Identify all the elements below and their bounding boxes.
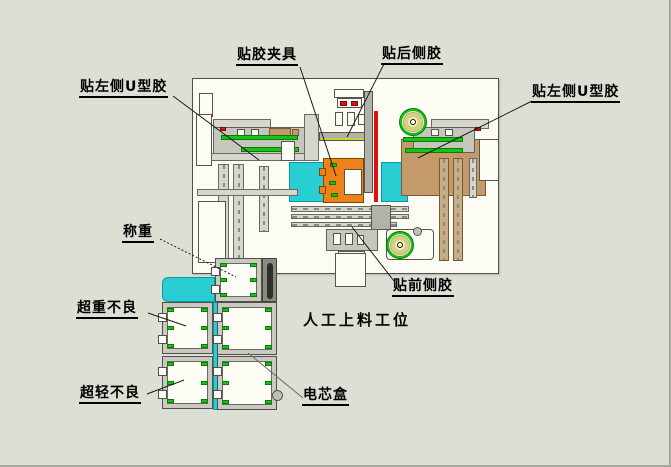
box-clip	[167, 362, 174, 366]
left-vertical-rail	[233, 164, 244, 261]
front-taping-head	[371, 205, 391, 230]
overweight-reject-box	[162, 302, 213, 354]
box-notch	[211, 285, 220, 294]
slot-groove	[267, 263, 273, 299]
label-left-u-taping-left: 贴左侧U型胶	[79, 80, 168, 98]
left-assembly-side-box	[196, 114, 212, 166]
left-bottom-box	[198, 201, 226, 263]
box-clip	[222, 400, 229, 404]
left-assembly-green-guide	[221, 135, 298, 140]
right-assembly-green-guide	[405, 148, 463, 153]
box-clip	[265, 362, 272, 366]
box-clip	[222, 308, 229, 312]
label-overweight-reject: 超重不良	[76, 301, 138, 319]
fixture-notch	[319, 168, 326, 176]
fixture-top-box	[334, 89, 364, 98]
right-assembly-red-marker	[475, 127, 481, 131]
box-notch	[158, 335, 167, 344]
label-left-u-taping-right: 贴左侧U型胶	[531, 85, 620, 103]
box-clip	[222, 326, 229, 330]
fixture-red-strip	[337, 98, 362, 108]
box-notch	[211, 267, 220, 276]
cell-supply-box	[217, 302, 277, 355]
box-clip	[220, 263, 227, 267]
center-gray-column	[364, 91, 373, 193]
box-clip	[220, 278, 227, 282]
center-bracket-column	[304, 114, 319, 161]
red-marker	[340, 101, 347, 106]
label-front-side-taping: 贴前侧胶	[392, 279, 454, 297]
box-notch	[213, 335, 222, 344]
box-clip	[222, 362, 229, 366]
bottom-linear-rail	[291, 214, 409, 219]
weighing-box	[215, 258, 262, 302]
box-clip	[250, 293, 257, 297]
fixture-clip	[331, 193, 338, 197]
tape-coil-bottom	[386, 231, 414, 259]
label-weighing: 称重	[122, 225, 154, 243]
label-taping-fixture: 贴胶夹具	[236, 48, 298, 66]
box-clip	[250, 263, 257, 267]
center-small-block	[281, 141, 295, 161]
right-vertical-rail	[439, 158, 449, 261]
plate-pin	[413, 227, 422, 236]
box-clip	[201, 326, 208, 330]
machine-frame	[192, 78, 499, 274]
right-assembly-green-guide	[403, 137, 463, 142]
tape-coil-top	[399, 108, 427, 136]
tape-yellow-line	[321, 138, 365, 140]
underweight-reject-box	[162, 356, 213, 409]
left-horizontal-strip	[197, 189, 298, 196]
front-cylinder	[345, 233, 353, 245]
right-vertical-rail	[453, 158, 463, 261]
box-clip	[201, 344, 208, 348]
box-notch	[158, 313, 167, 322]
box-clip	[222, 345, 229, 349]
box-clip	[250, 278, 257, 282]
left-assembly-red-marker	[220, 127, 226, 131]
box-clip	[265, 326, 272, 330]
taping-cylinder	[347, 112, 355, 126]
box-clip	[167, 308, 174, 312]
right-vertical-rail	[469, 158, 477, 198]
label-cell-box: 电芯盒	[302, 388, 349, 406]
box-clip	[167, 344, 174, 348]
taping-fixture-carrier	[323, 158, 364, 203]
cell-in-fixture	[344, 169, 362, 195]
box-notch	[213, 313, 222, 322]
label-underweight-reject: 超轻不良	[79, 386, 141, 404]
fixture-clip	[329, 181, 336, 185]
right-assembly-side-box	[479, 139, 499, 181]
box-clip	[222, 381, 229, 385]
box-notch	[158, 390, 167, 399]
box-clip	[167, 326, 174, 330]
fixture-clip	[330, 163, 337, 167]
machine-layout-diagram: 贴胶夹具 贴后侧胶 贴左侧U型胶 贴左侧U型胶 称重 超重不良 超轻不良 贴前侧…	[0, 0, 671, 467]
box-clip	[220, 293, 227, 297]
taping-cylinder	[335, 112, 343, 126]
box-clip	[265, 381, 272, 385]
left-vertical-rail	[259, 166, 269, 232]
box-clip	[167, 399, 174, 403]
box-clip	[265, 400, 272, 404]
right-assembly-cylinder	[431, 129, 439, 136]
box-clip	[167, 381, 174, 385]
label-manual-loading-station: 人工上料工位	[302, 313, 412, 329]
grid-corner-pin	[272, 390, 283, 401]
box-clip	[265, 308, 272, 312]
front-cylinder	[333, 233, 341, 245]
bottom-linear-rail	[291, 206, 409, 212]
right-assembly-cylinder	[445, 129, 453, 136]
box-clip	[201, 308, 208, 312]
box-notch	[213, 390, 222, 399]
box-clip	[265, 345, 272, 349]
back-taping-red-line	[374, 111, 378, 202]
bottom-protruding-box	[335, 253, 366, 287]
box-clip	[201, 362, 208, 366]
front-cylinder	[357, 235, 364, 245]
box-clip	[201, 399, 208, 403]
box-clip	[201, 381, 208, 385]
cell-supply-box	[217, 356, 277, 410]
label-back-side-taping: 贴后侧胶	[381, 47, 443, 65]
weighing-scanner-slot	[262, 258, 277, 302]
box-notch	[213, 367, 222, 376]
weighing-conveyor	[162, 277, 215, 302]
red-marker	[351, 101, 358, 106]
box-notch	[158, 367, 167, 376]
fixture-notch	[319, 186, 326, 194]
